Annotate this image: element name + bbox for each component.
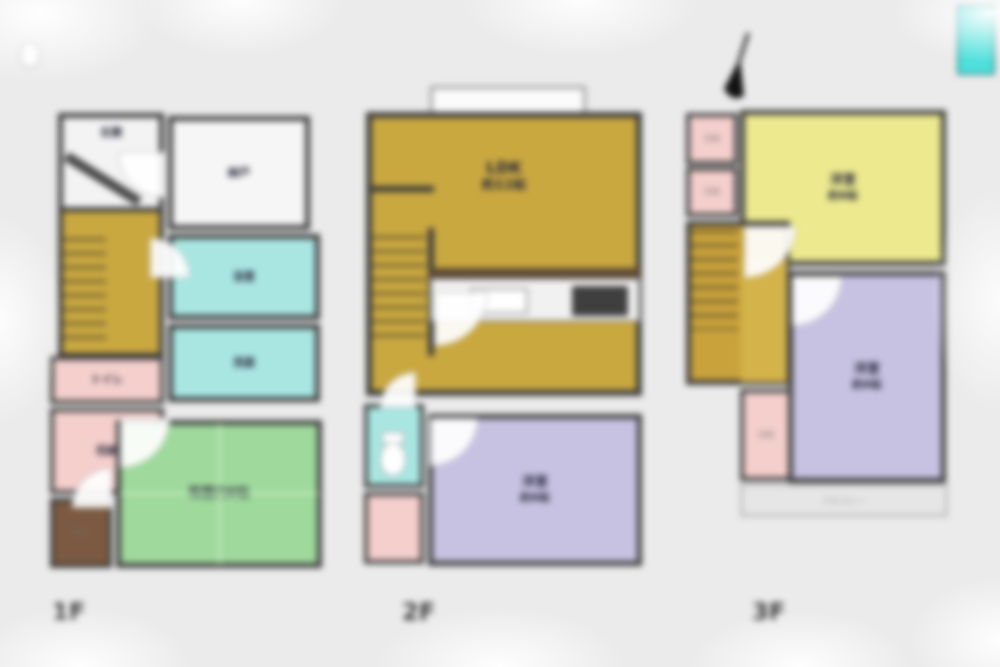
room-bath: 浴室	[168, 234, 320, 320]
toilet-1f-label: トイレ	[91, 373, 124, 387]
bath-label: 浴室	[233, 270, 255, 284]
floorplan-scene: 玄関 納戸 浴室 洗面 トイレ 収納 押入	[0, 0, 1000, 667]
room-closet-2f	[364, 492, 424, 564]
floorplan-canvas: 玄関 納戸 浴室 洗面 トイレ 収納 押入	[0, 0, 1000, 667]
senmen-label: 洗面	[233, 356, 255, 370]
room-closet-3f-a: 収納	[686, 113, 738, 165]
bedroom-3f-a-label: 洋室	[830, 173, 856, 189]
bathtub-icon	[957, 5, 995, 75]
washbasin-icon	[20, 42, 40, 68]
balcony-3f: バルコニー	[740, 483, 948, 517]
floor-tag-3f: 3F	[752, 598, 785, 626]
floor-tag-2f: 2F	[402, 598, 435, 626]
stairs-2f-icon	[372, 236, 426, 348]
kitchen-counter	[430, 268, 640, 278]
north-arrow-icon	[705, 28, 775, 103]
bedroom-3f-b-label: 洋室	[854, 362, 880, 378]
oshiire-label: 押入	[73, 528, 89, 538]
balcony-3f-label: バルコニー	[822, 494, 867, 507]
genkan-label: 玄関	[100, 126, 122, 140]
room-senmen: 洗面	[168, 324, 320, 402]
room-closet-3f-b: 収納	[686, 167, 738, 217]
room-nando: 納戸	[168, 116, 310, 230]
room-closet-3f-c: 収納	[740, 389, 792, 481]
bedroom-2f-label: 洋室	[522, 475, 548, 491]
nando-label: 納戸	[228, 166, 250, 180]
bedroom-3f-a-size-label: 約6帖	[828, 189, 858, 203]
ldk-size-label: 約11帖	[482, 178, 526, 194]
closet-3f-a-label: 収納	[704, 134, 720, 144]
bedroom-2f-size-label: 約6帖	[520, 491, 550, 505]
toilet-fixture-icon	[380, 442, 406, 476]
closet-3f-c-label: 収納	[758, 430, 774, 440]
stove-icon	[572, 286, 628, 316]
stairs-1f-icon	[62, 238, 106, 350]
closet-3f-b-label: 収納	[704, 187, 720, 197]
ldk-label: LDK	[486, 158, 522, 178]
room-toilet-1f: トイレ	[50, 356, 164, 404]
room-oshiire: 押入	[50, 498, 112, 568]
bedroom-3f-b-size-label: 約6帖	[852, 378, 882, 392]
wall-segment	[366, 186, 434, 192]
closet-1f-label: 収納	[96, 444, 118, 458]
floor-tag-1f: 1F	[52, 598, 85, 626]
stairs-3f-icon	[690, 230, 738, 330]
tatami-divider	[120, 492, 318, 495]
